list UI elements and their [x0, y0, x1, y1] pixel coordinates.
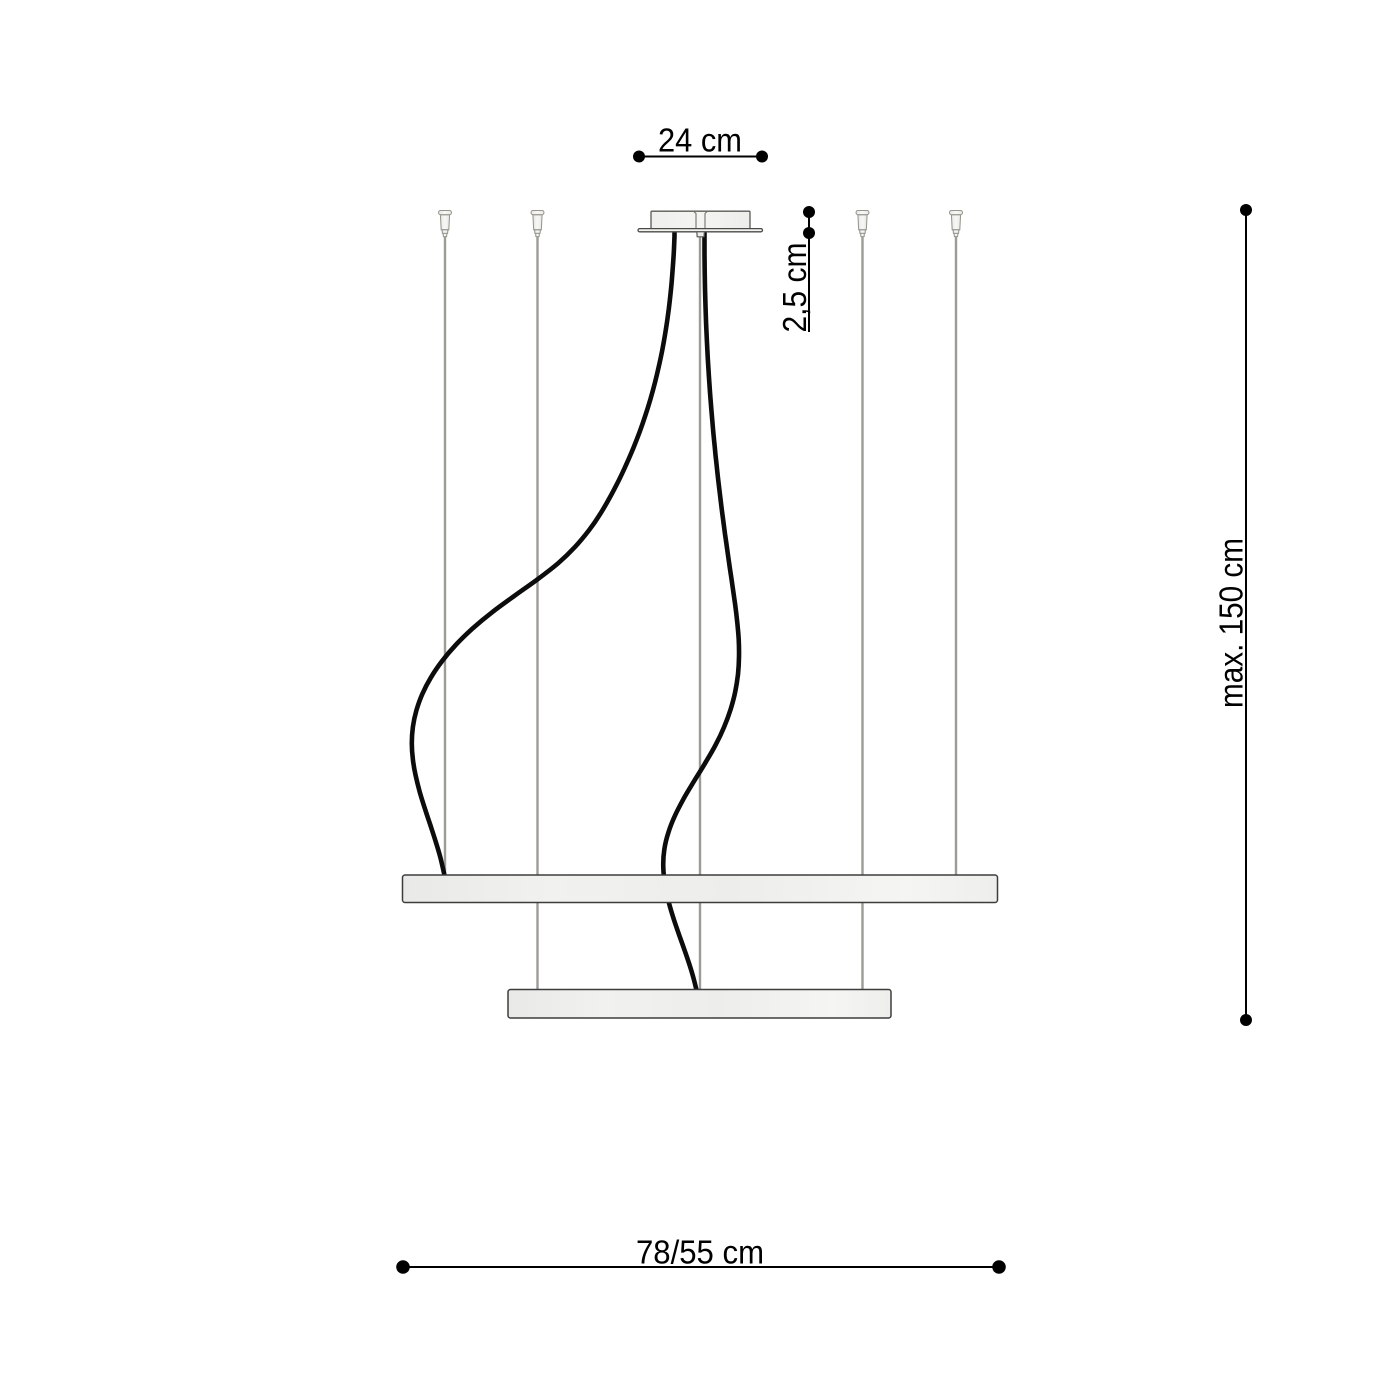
svg-text:24 cm: 24 cm — [658, 122, 742, 159]
svg-text:78/55 cm: 78/55 cm — [636, 1234, 764, 1271]
svg-text:max. 150 cm: max. 150 cm — [1213, 538, 1250, 708]
svg-text:2,5 cm: 2,5 cm — [776, 243, 813, 333]
